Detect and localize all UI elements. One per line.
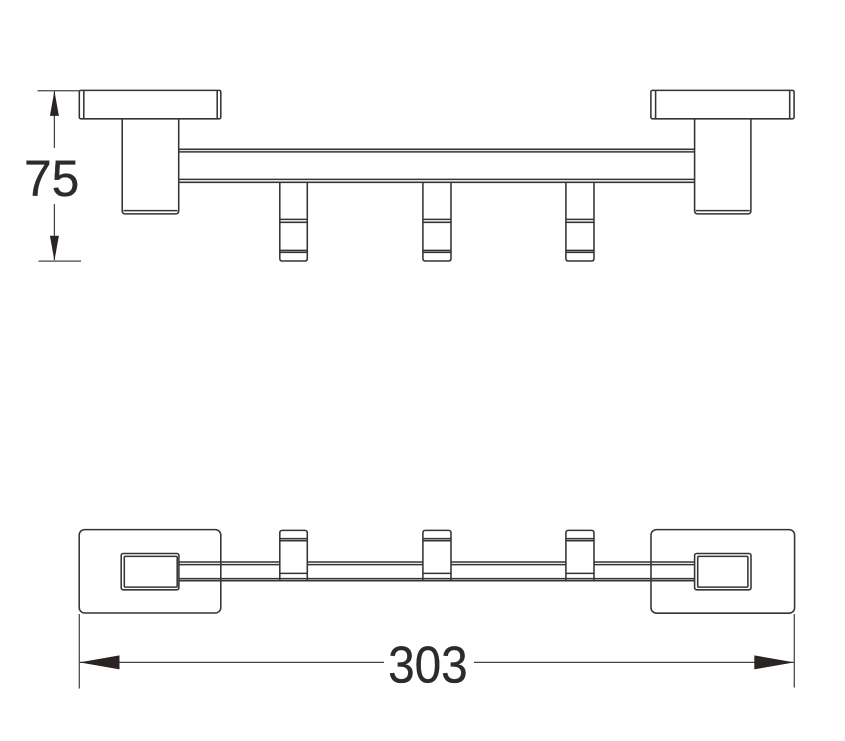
svg-text:75: 75 [24, 150, 79, 208]
svg-text:303: 303 [388, 635, 468, 694]
